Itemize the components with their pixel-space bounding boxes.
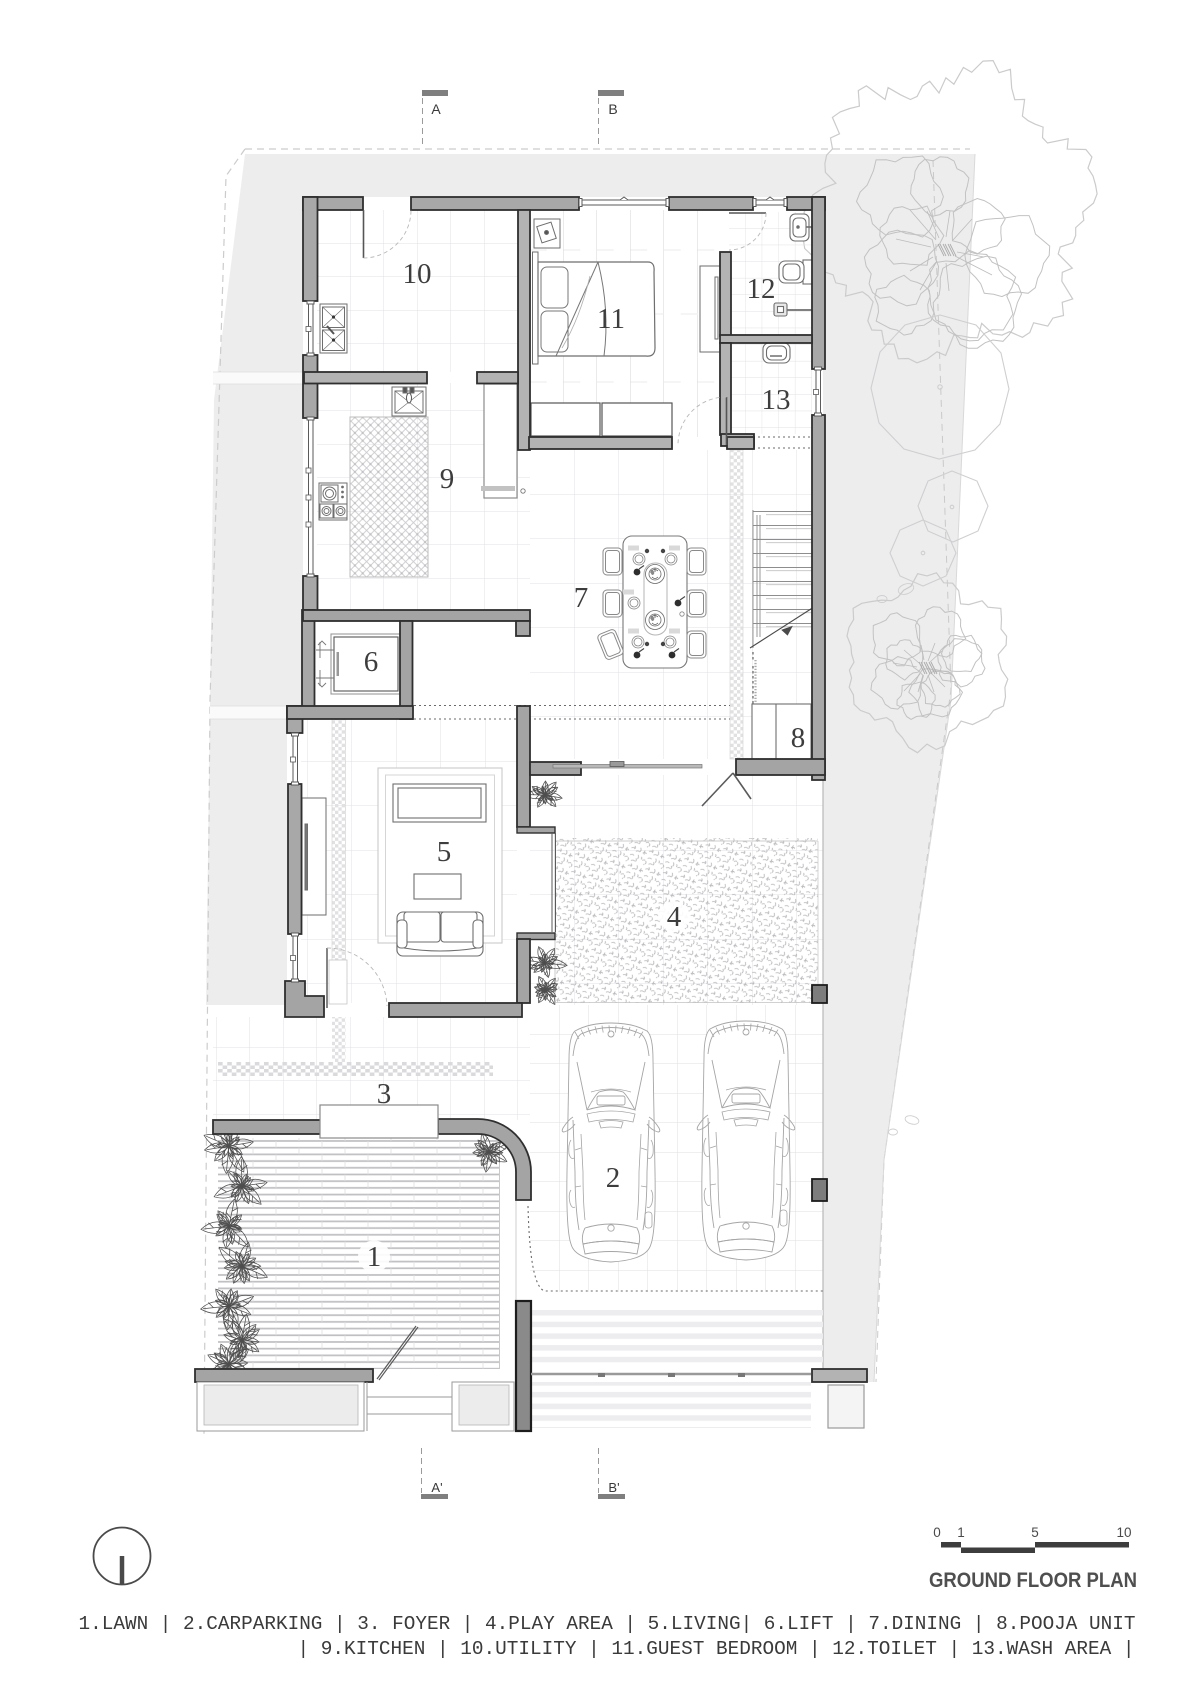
svg-text:3: 3 bbox=[377, 1078, 392, 1110]
svg-text:9: 9 bbox=[440, 463, 455, 495]
svg-text:| 9.KITCHEN | 10.UTILITY | 11.: | 9.KITCHEN | 10.UTILITY | 11.GUEST BEDR… bbox=[298, 1638, 1135, 1660]
svg-text:4: 4 bbox=[667, 901, 682, 933]
svg-text:1.LAWN | 2.CARPARKING | 3. FOY: 1.LAWN | 2.CARPARKING | 3. FOYER | 4.PLA… bbox=[79, 1613, 1136, 1635]
svg-text:13: 13 bbox=[762, 384, 791, 416]
svg-text:A': A' bbox=[431, 1480, 442, 1495]
svg-text:8: 8 bbox=[791, 722, 806, 754]
svg-text:1: 1 bbox=[957, 1525, 965, 1540]
svg-text:2: 2 bbox=[606, 1162, 621, 1194]
svg-text:7: 7 bbox=[574, 582, 589, 614]
svg-text:GROUND FLOOR PLAN: GROUND FLOOR PLAN bbox=[929, 1568, 1137, 1592]
svg-text:A: A bbox=[431, 101, 441, 117]
svg-text:11: 11 bbox=[597, 303, 625, 335]
svg-text:12: 12 bbox=[747, 273, 776, 305]
svg-text:1: 1 bbox=[367, 1241, 382, 1273]
svg-text:B': B' bbox=[608, 1480, 619, 1495]
svg-text:0: 0 bbox=[933, 1525, 941, 1540]
svg-text:6: 6 bbox=[364, 646, 379, 678]
svg-text:10: 10 bbox=[1116, 1525, 1131, 1540]
svg-text:5: 5 bbox=[437, 836, 452, 868]
svg-text:10: 10 bbox=[403, 258, 432, 290]
svg-text:B: B bbox=[608, 101, 617, 117]
svg-text:5: 5 bbox=[1031, 1525, 1039, 1540]
